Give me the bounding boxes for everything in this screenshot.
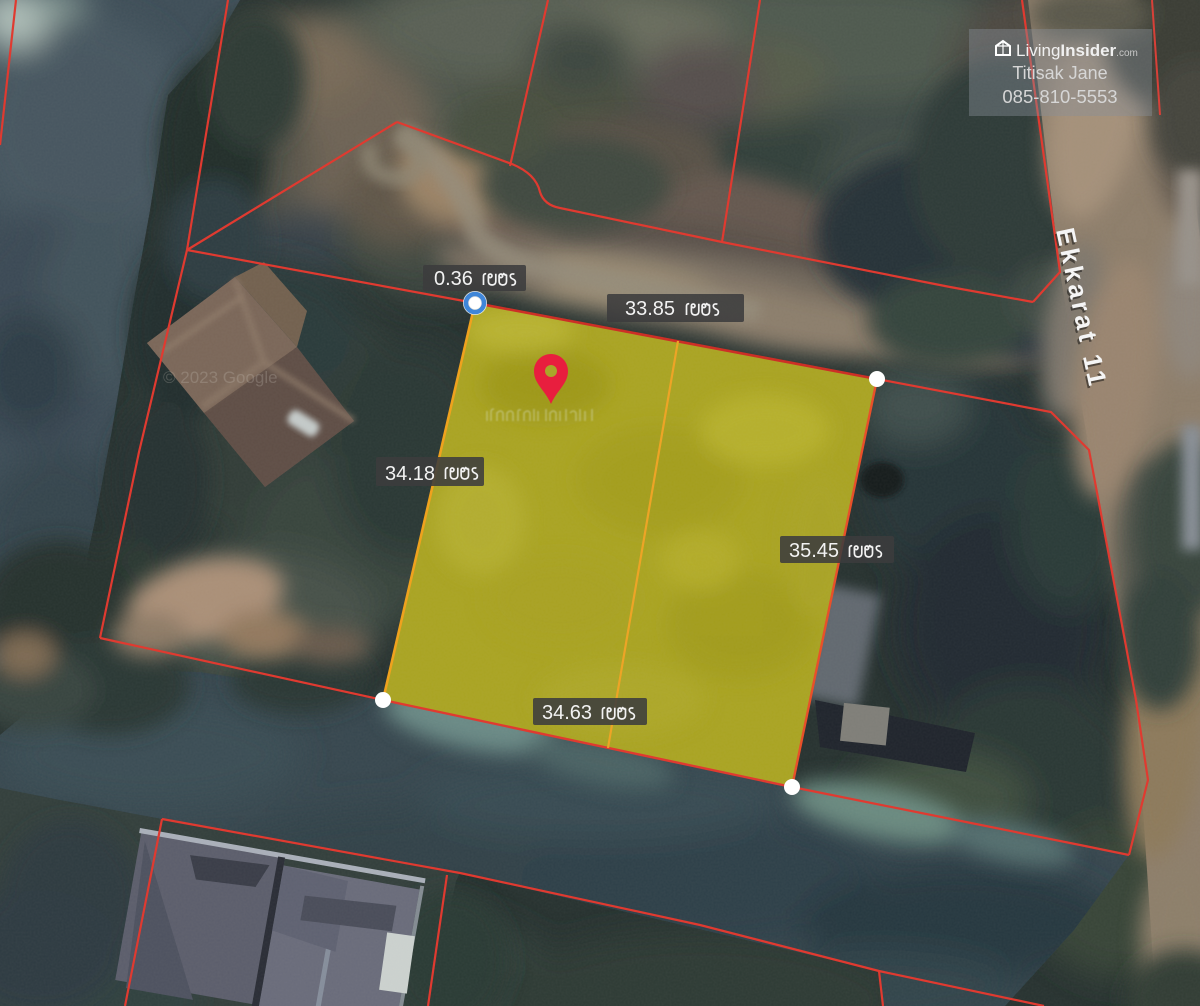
- svg-text:085-810-5553: 085-810-5553: [1002, 86, 1117, 107]
- svg-text:0.36: 0.36: [434, 268, 473, 290]
- svg-text:33.85: 33.85: [625, 298, 675, 320]
- svg-text:35.45: 35.45: [789, 540, 839, 562]
- svg-text:Titisak Jane: Titisak Jane: [1012, 63, 1107, 83]
- svg-text:© 2023 Google: © 2023 Google: [163, 368, 278, 387]
- svg-text:34.18: 34.18: [385, 463, 435, 485]
- svg-text:34.63: 34.63: [542, 702, 592, 724]
